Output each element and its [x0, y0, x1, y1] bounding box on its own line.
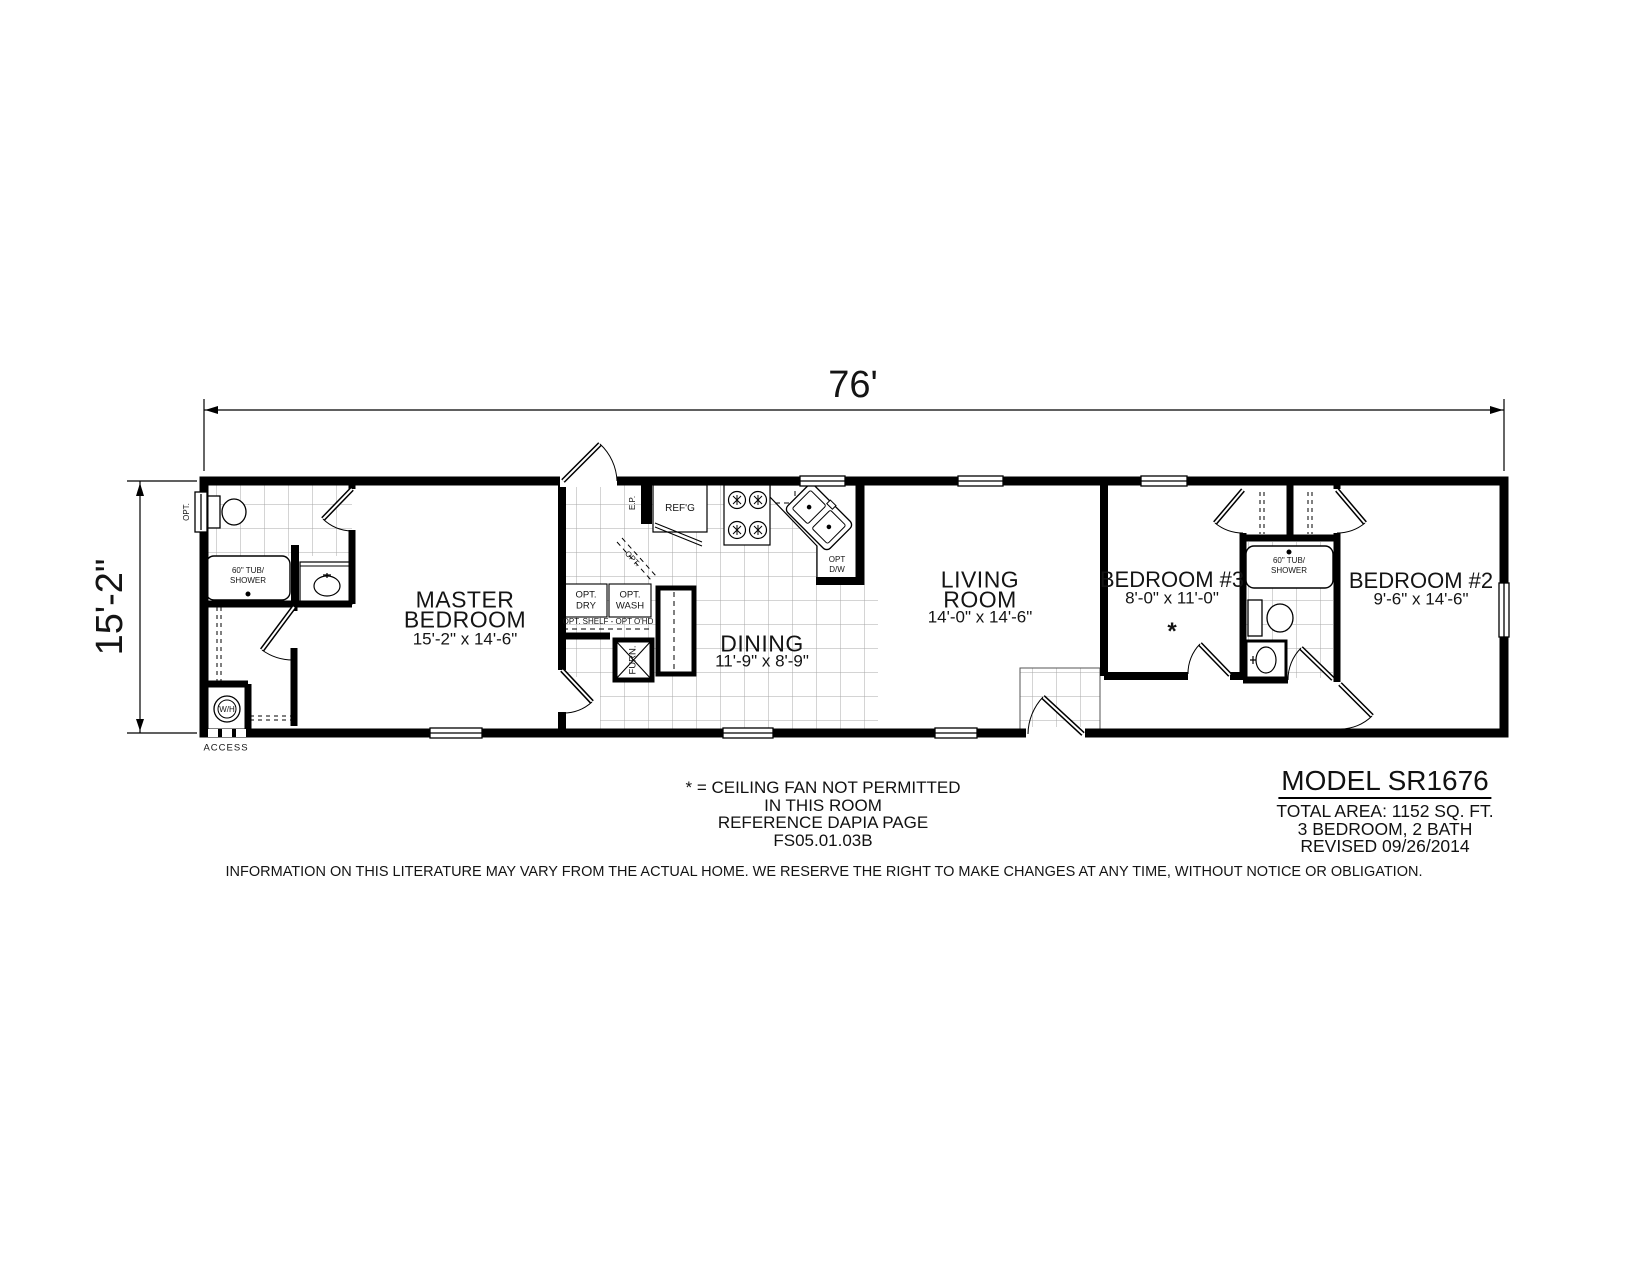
window-icon-opt-master-bath: [195, 492, 207, 532]
window-icon-dining: [723, 728, 773, 738]
opt-dishwasher-label: OPT: [829, 556, 845, 564]
window-icon-living-top: [958, 476, 1003, 486]
model-title: MODEL SR1676: [1278, 767, 1492, 799]
window-icon-bedroom3: [1141, 476, 1187, 486]
note-line-2: IN THIS ROOM: [685, 797, 960, 815]
floor-plan-page: 76' 15'-2" MASTER BEDROOM 15'-2" x 14'-6…: [0, 0, 1650, 1275]
furnace-label: FURN.: [628, 645, 638, 674]
bedroom3-size: 8'-0" x 11'-0": [1125, 590, 1219, 607]
overall-width-dimension: 76': [828, 366, 878, 404]
toilet2-icon: [1267, 604, 1293, 632]
master-bedroom-label2: BEDROOM: [404, 609, 526, 632]
opt-washer-label: OPT.: [619, 590, 640, 600]
model-info-block: MODEL SR1676 TOTAL AREA: 1152 SQ. FT. 3 …: [1276, 767, 1493, 856]
toilet-icon: [222, 499, 246, 525]
opt-shelf-label: OPT. SHELF - OPT O'HD: [563, 618, 654, 626]
master-tub-label: 60" TUB/: [232, 567, 264, 575]
master-tub-label2: SHOWER: [230, 577, 266, 585]
window-icon-living-bottom: [935, 728, 977, 738]
bath2-tub-label2: SHOWER: [1271, 567, 1307, 575]
opt-dishwasher-label2: D/W: [829, 566, 845, 574]
toilet2-tank: [1248, 600, 1262, 636]
opt-washer-label2: WASH: [616, 601, 644, 611]
bedroom2-size: 9'-6" x 14'-6": [1373, 591, 1468, 608]
master-bedroom-size: 15'-2" x 14'-6": [413, 631, 518, 648]
access-label: ACCESS: [203, 743, 248, 753]
water-heater-label: W/H: [219, 706, 235, 714]
refrigerator-label: REF'G: [665, 504, 695, 514]
electrical-panel-label: E.P.: [629, 496, 637, 510]
access-panel-dashes: [208, 729, 246, 737]
note-line-4: FS05.01.03B: [685, 832, 960, 850]
opt-dryer-label: OPT.: [575, 590, 596, 600]
sink-icon: [314, 576, 340, 596]
closet-rods: [1260, 492, 1312, 534]
storage-cabinet: [658, 588, 694, 674]
opt-window-label: OPT.: [183, 503, 191, 521]
dining-size: 11'-9" x 8'-9": [715, 653, 809, 670]
model-total-area: TOTAL AREA: 1152 SQ. FT.: [1276, 803, 1493, 821]
window-icon-kitchen: [800, 476, 845, 486]
living-room-size: 14'-0" x 14'-6": [928, 609, 1033, 626]
ceiling-fan-note: * = CEILING FAN NOT PERMITTED IN THIS RO…: [685, 779, 960, 849]
floor-plan-drawing: [0, 0, 1650, 1275]
ceiling-fan-marker: *: [1167, 620, 1176, 644]
electrical-panel-icon: [641, 484, 652, 524]
bath2-tub-label: 60" TUB/: [1273, 557, 1305, 565]
model-revised: REVISED 09/26/2014: [1276, 838, 1493, 856]
note-line-1: * = CEILING FAN NOT PERMITTED: [685, 779, 960, 797]
disclaimer-text: INFORMATION ON THIS LITERATURE MAY VARY …: [226, 865, 1423, 880]
sink2-icon: [1256, 647, 1276, 673]
note-line-3: REFERENCE DAPIA PAGE: [685, 814, 960, 832]
opt-dryer-label2: DRY: [576, 601, 596, 611]
overall-depth-dimension: 15'-2": [91, 559, 129, 656]
window-icon-bedroom2: [1499, 583, 1509, 637]
window-icon-master: [430, 728, 482, 738]
